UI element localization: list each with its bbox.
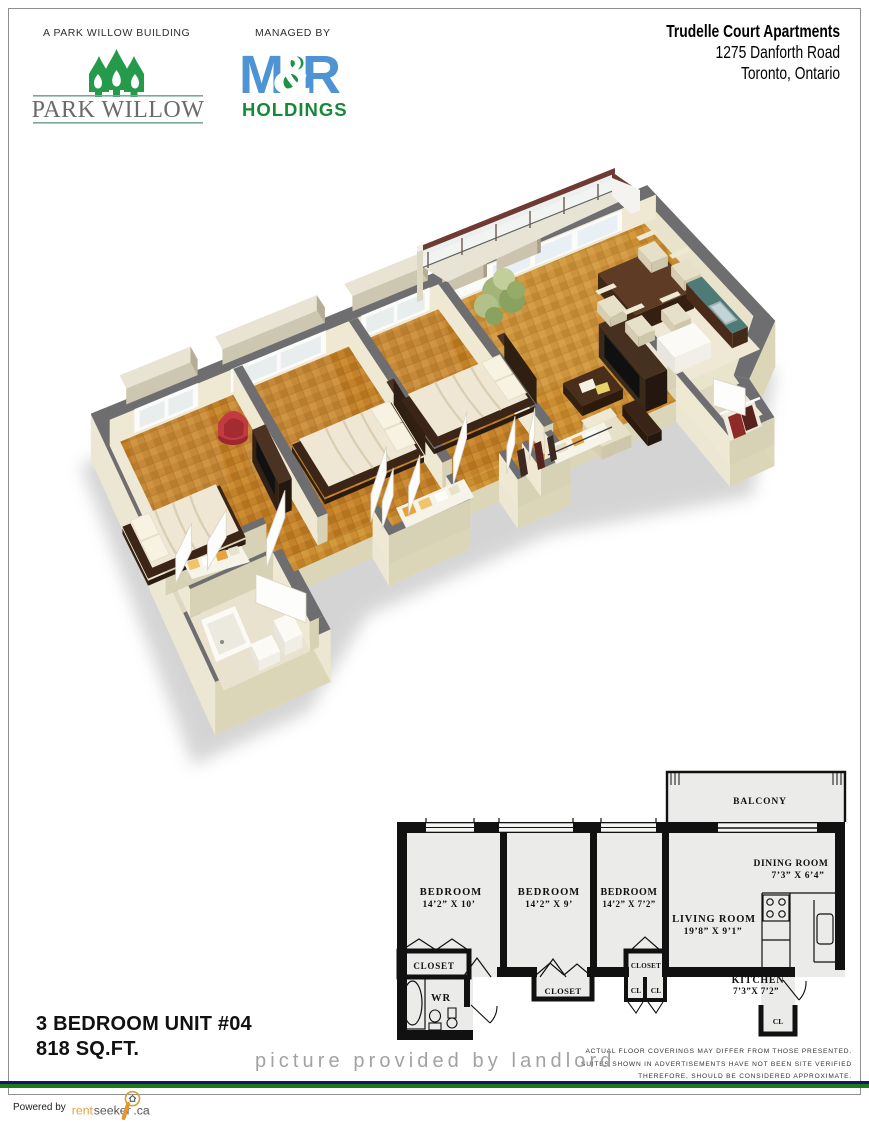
svg-text:CLOSET: CLOSET	[545, 986, 582, 996]
svg-text:CL: CL	[773, 1017, 783, 1026]
svg-text:14’2” X 9’: 14’2” X 9’	[525, 900, 573, 910]
svg-text:BEDROOM: BEDROOM	[518, 887, 580, 898]
svg-text:rent: rent	[72, 1104, 94, 1118]
svg-text:19’8” X 9’1”: 19’8” X 9’1”	[684, 927, 742, 937]
svg-text:BEDROOM: BEDROOM	[601, 887, 658, 898]
svg-text:BALCONY: BALCONY	[733, 797, 787, 807]
svg-text:PARK WILLOW: PARK WILLOW	[32, 97, 205, 123]
svg-text:&: &	[272, 49, 311, 105]
svg-text:LIVING ROOM: LIVING ROOM	[672, 914, 756, 925]
svg-text:WR: WR	[431, 993, 451, 1004]
svg-text:14’2” X 7’2”: 14’2” X 7’2”	[602, 899, 655, 909]
svg-text:BEDROOM: BEDROOM	[420, 887, 482, 898]
svg-text:DINING ROOM: DINING ROOM	[754, 859, 829, 869]
svg-text:7’3”X 7’2”: 7’3”X 7’2”	[733, 986, 779, 996]
svg-text:CLOSET: CLOSET	[631, 962, 661, 970]
svg-text:KITCHEN: KITCHEN	[732, 975, 785, 986]
svg-text:CL: CL	[651, 986, 661, 995]
svg-text:7’3” X 6’4”: 7’3” X 6’4”	[771, 871, 824, 881]
svg-text:HOLDINGS: HOLDINGS	[242, 99, 348, 120]
svg-text:CL: CL	[631, 986, 641, 995]
svg-text:14’2” X 10’: 14’2” X 10’	[422, 900, 475, 910]
svg-text:CLOSET: CLOSET	[413, 961, 454, 971]
